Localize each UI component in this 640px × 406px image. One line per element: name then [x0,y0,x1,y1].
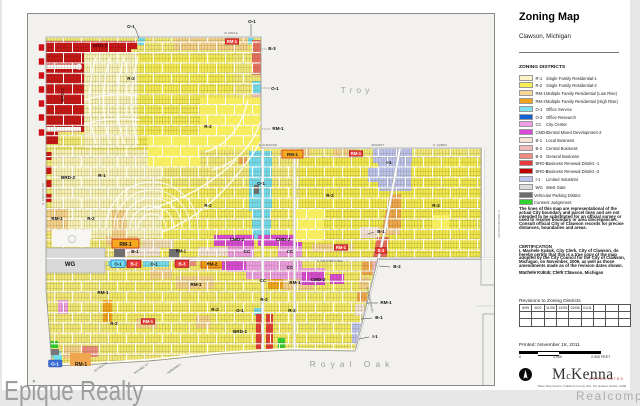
svg-text:BRD-2: BRD-2 [93,43,108,49]
svg-text:RM-1: RM-1 [75,362,87,368]
svg-text:B-3: B-3 [378,248,385,253]
svg-text:RM-1: RM-1 [143,319,154,324]
svg-text:B-3: B-3 [178,262,186,267]
svg-text:CC: CC [287,249,294,254]
svg-text:B-1: B-1 [377,229,385,234]
svg-text:RM-1: RM-1 [190,282,202,287]
svg-text:S. ROCHESTER RD: S. ROCHESTER RD [497,210,501,239]
svg-text:I-1: I-1 [372,334,378,339]
svg-text:CC: CC [260,278,267,283]
svg-text:CC: CC [287,265,294,270]
svg-text:Troy: Troy [341,85,374,95]
svg-text:O-1: O-1 [236,308,244,313]
svg-text:RM-2: RM-2 [207,262,218,267]
svg-text:R-2: R-2 [326,193,334,198]
svg-text:B-1: B-1 [131,249,139,254]
svg-text:B-3: B-3 [268,46,276,51]
svg-text:BASSETT: BASSETT [372,143,385,147]
svg-text:N. HUMES: N. HUMES [433,143,447,147]
svg-text:R-2: R-2 [110,321,118,326]
svg-text:R-2: R-2 [211,307,219,312]
svg-text:RM-1: RM-1 [336,245,347,250]
svg-text:O-1: O-1 [114,262,122,267]
svg-text:BRD-2: BRD-2 [61,175,75,180]
svg-text:CC: CC [244,249,251,254]
svg-text:CMD-2: CMD-2 [276,237,291,242]
svg-text:O-1: O-1 [150,262,158,267]
svg-text:N. FOURTEEN MILE: N. FOURTEEN MILE [317,259,343,263]
svg-text:O-1: O-1 [127,24,135,29]
svg-text:RM-1: RM-1 [351,151,362,156]
svg-text:B-1: B-1 [375,315,383,320]
svg-text:I-1: I-1 [386,160,392,165]
svg-text:O-1: O-1 [51,361,59,366]
svg-text:R-2: R-2 [204,124,212,129]
svg-text:BRD-2: BRD-2 [60,88,65,102]
svg-text:RM-1: RM-1 [97,290,109,295]
svg-text:RM-1: RM-1 [227,39,238,44]
svg-text:CMD-2: CMD-2 [230,237,245,242]
svg-text:RM-1: RM-1 [289,280,301,285]
svg-text:S. ELMWOOD: S. ELMWOOD [259,143,277,147]
svg-text:B-2: B-2 [130,262,138,267]
svg-text:R-2: R-2 [432,203,440,208]
svg-text:R-2: R-2 [127,76,135,81]
svg-text:W. MAPLE: W. MAPLE [224,31,238,35]
svg-text:RM-1: RM-1 [119,242,131,248]
svg-text:CMD-2: CMD-2 [311,277,326,282]
svg-text:R-2: R-2 [288,308,296,313]
svg-text:R-2: R-2 [87,216,95,221]
svg-text:B-2: B-2 [393,264,401,269]
svg-text:N. CROOKS RD: N. CROOKS RD [41,182,45,205]
svg-text:BRD-1: BRD-1 [233,329,247,334]
svg-text:RM-1: RM-1 [287,152,299,157]
svg-text:RM-1: RM-1 [380,300,392,305]
svg-text:RM-1: RM-1 [272,126,284,131]
svg-text:RM-1: RM-1 [176,249,187,254]
svg-text:RM-1: RM-1 [51,216,63,221]
svg-text:WG: WG [65,262,76,268]
svg-text:O-1: O-1 [248,19,256,24]
svg-text:Royal Oak: Royal Oak [310,359,395,369]
svg-text:O-1: O-1 [257,181,265,187]
svg-text:R-1: R-1 [98,173,106,178]
svg-text:O-1: O-1 [271,86,279,91]
svg-text:R-2: R-2 [260,297,268,302]
svg-text:R-2: R-2 [204,203,212,208]
